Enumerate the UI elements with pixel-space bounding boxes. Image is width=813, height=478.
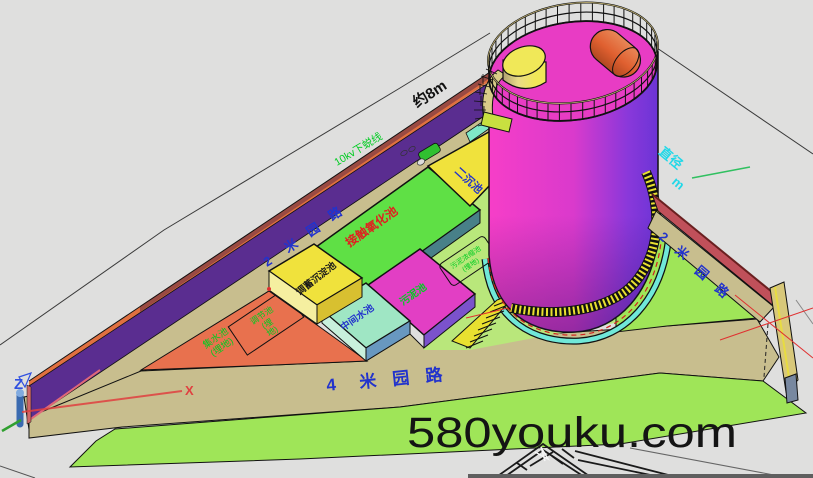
svg-text:园: 园 xyxy=(391,368,410,389)
svg-text:米: 米 xyxy=(358,370,378,392)
svg-text:X: X xyxy=(185,383,194,398)
svg-text:580youku.com: 580youku.com xyxy=(407,409,737,457)
svg-text:路: 路 xyxy=(424,364,444,386)
